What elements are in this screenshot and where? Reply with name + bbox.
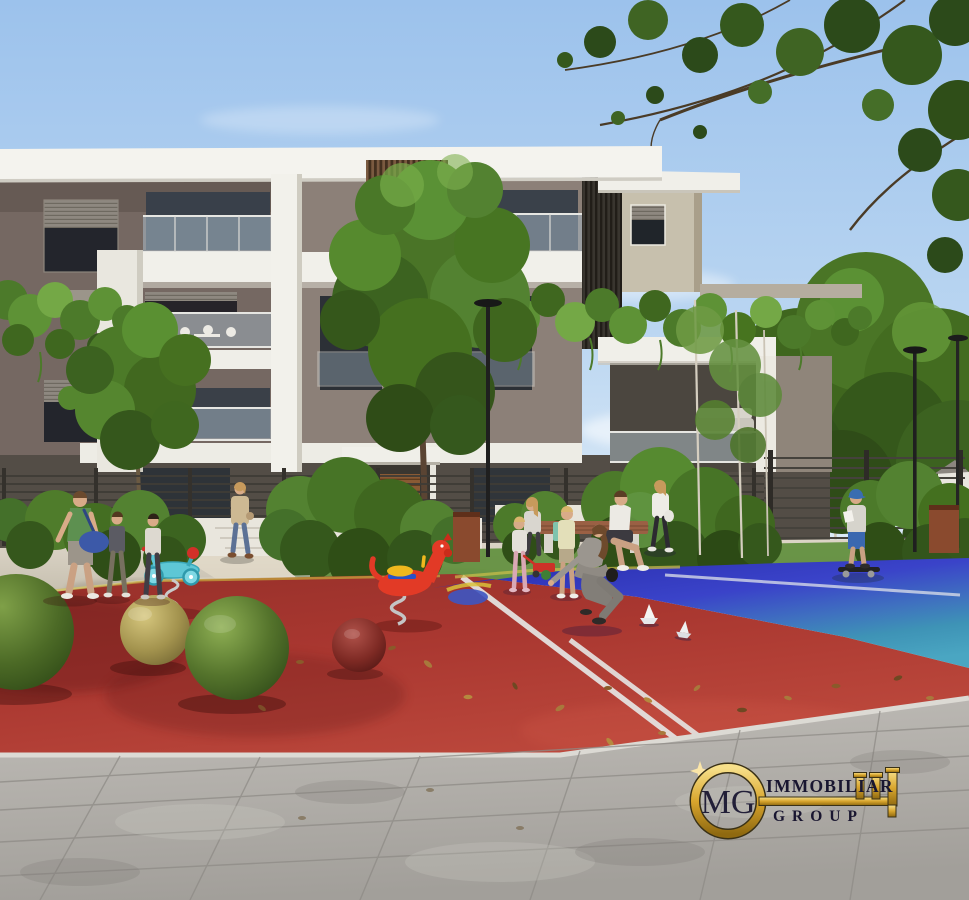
render-canvas: MG IMMOBILIAR GROUP: [0, 0, 969, 900]
logo-text-line1: IMMOBILIAR: [766, 776, 894, 796]
logo-monogram: MG: [701, 784, 756, 821]
architectural-rendering: MG IMMOBILIAR GROUP: [0, 0, 969, 900]
penthouse-window: [631, 205, 665, 245]
logo-text-line2: GROUP: [773, 808, 864, 825]
balcony-railing-f3-left: [143, 216, 273, 252]
roof-fascia-main: [0, 146, 662, 181]
duffel-bag: [79, 531, 109, 553]
ball-red-small: [332, 618, 386, 672]
ball-green-large: [185, 596, 289, 700]
